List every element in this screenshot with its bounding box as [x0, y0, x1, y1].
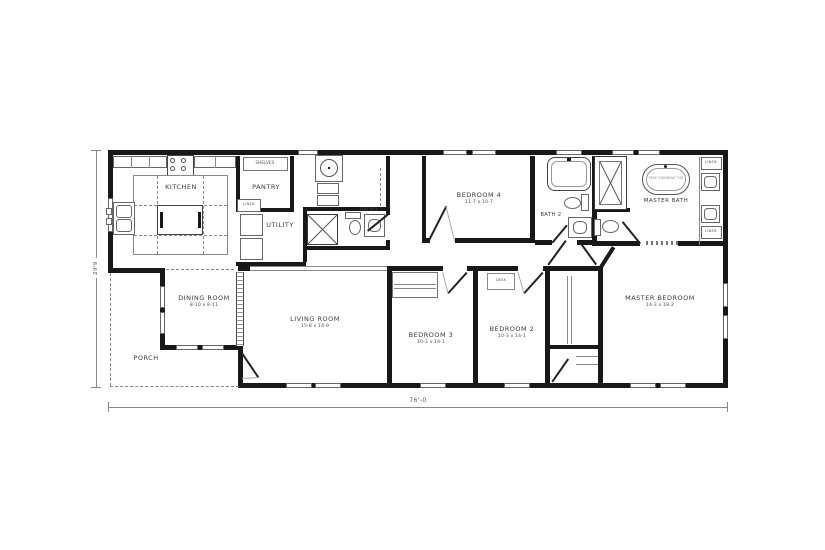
closet-rod: [567, 276, 568, 344]
window: [723, 283, 728, 307]
linen-label: LINEN: [705, 161, 716, 165]
window: [160, 286, 165, 308]
burner-icon: [170, 158, 175, 163]
wall: [108, 268, 165, 273]
wall: [455, 238, 535, 243]
room-label-master-bedroom: MASTER BEDROOM: [625, 295, 695, 302]
closet-rod: [394, 288, 436, 289]
cabinet-line: [149, 156, 150, 168]
wall: [392, 266, 443, 271]
linen-label: LINEN: [705, 230, 716, 234]
room-label-kitchen: KITCHEN: [165, 184, 197, 191]
room-label-pantry: PANTRY: [252, 184, 280, 191]
hall-line: [380, 168, 381, 206]
room-label-utility: UTILITY: [266, 222, 294, 229]
window: [472, 150, 496, 155]
wall: [723, 155, 728, 388]
cabinet-line: [215, 156, 216, 168]
door-swing: [524, 272, 544, 294]
island-line: [203, 176, 204, 254]
vanity-counter-line: [699, 157, 700, 245]
cabinet: [317, 195, 339, 206]
toilet-tank: [581, 194, 589, 211]
plant-shelf-wall: [646, 241, 678, 245]
door-arc: [446, 206, 456, 241]
window: [612, 150, 634, 155]
closet-rod: [571, 276, 572, 344]
toilet-bowl: [564, 197, 581, 209]
room-divider-column: [236, 272, 244, 346]
room-label-porch: PORCH: [133, 355, 158, 362]
burner-icon: [181, 166, 186, 171]
room-dims-bedroom4: 11-7 x 10-7: [465, 201, 493, 206]
room-label-bath3: BATH 3: [360, 209, 377, 214]
bathtub-inner: [551, 161, 587, 187]
washer: [240, 214, 263, 236]
closet-shelf: [576, 364, 598, 365]
kitchen-counter: [113, 156, 167, 168]
dryer: [240, 238, 263, 260]
water-heater-dot: [328, 167, 330, 169]
cased-opening: [166, 269, 234, 270]
wall: [530, 156, 535, 243]
toilet-bowl: [602, 220, 619, 233]
closet: [392, 272, 438, 298]
wall: [290, 156, 294, 212]
window: [420, 383, 446, 388]
room-dims-bedroom2: 10-3 x 14-1: [498, 335, 526, 340]
wall: [550, 345, 598, 349]
burner-icon: [170, 166, 175, 171]
toilet-tank: [345, 212, 361, 219]
room-dims-living: 15-8 x 14-9: [301, 325, 329, 330]
dimension-tick: [727, 402, 728, 412]
island-line: [134, 235, 227, 236]
window: [202, 345, 224, 350]
cabinet: [317, 183, 339, 194]
toilet-bowl: [349, 220, 361, 235]
dimension-line: [108, 407, 728, 408]
door-swing: [241, 352, 259, 378]
louver-line: [250, 270, 387, 271]
wall: [108, 150, 728, 155]
wall: [160, 268, 165, 350]
wall: [422, 156, 426, 243]
wall: [535, 240, 552, 245]
room-label-dining: DINING ROOM: [178, 295, 230, 302]
vanity-sink: [573, 221, 587, 234]
sink-bowl: [116, 219, 132, 232]
door-arc: [242, 377, 259, 379]
toilet-tank: [594, 219, 601, 236]
faucet-icon: [567, 158, 571, 161]
window: [723, 315, 728, 339]
faucet-icon: [106, 208, 112, 215]
door-arc: [517, 272, 524, 293]
wall-diagonal: [598, 246, 615, 270]
wall: [545, 266, 550, 385]
door-swing: [551, 358, 568, 382]
room-dims-bedroom3: 10-3 x 14-1: [417, 341, 445, 346]
window: [638, 150, 660, 155]
wall: [238, 266, 250, 271]
room-label-bedroom4: BEDROOM 4: [457, 192, 502, 199]
window: [315, 383, 341, 388]
door-arc: [442, 272, 448, 294]
room-dims-master-bedroom: 14-3 x 18-2: [646, 304, 674, 309]
window: [556, 150, 582, 155]
room-label-bath2: BATH 2: [540, 213, 561, 218]
window: [630, 383, 656, 388]
room-label-living: LIVING ROOM: [290, 316, 340, 323]
porch-edge: [110, 273, 111, 386]
tub-label: FREE STANDING TUB: [649, 177, 684, 180]
cabinet-line: [131, 156, 132, 168]
wall: [592, 241, 640, 246]
room-label-bedroom3: BEDROOM 3: [409, 332, 454, 339]
shelves-label: SHELVES: [255, 161, 274, 165]
door-swing: [448, 272, 468, 294]
overall-depth-dimension: 29'9: [93, 258, 99, 278]
dimension-tick: [91, 387, 101, 388]
window: [443, 150, 467, 155]
wall: [550, 266, 598, 271]
room-dims-dining: 8-10 x 8-11: [190, 304, 218, 309]
floor-plan-canvas: SHELVES LINEN FREE STANDING TUB LINEN LI…: [0, 0, 825, 550]
window: [286, 383, 312, 388]
wall: [386, 156, 390, 215]
window: [176, 345, 198, 350]
wall: [303, 246, 390, 250]
window: [160, 312, 165, 334]
window: [660, 383, 686, 388]
desk-label: DESK: [496, 279, 506, 283]
louver-line: [250, 266, 387, 267]
porch-edge: [110, 386, 239, 387]
island-seat: [160, 212, 163, 228]
linen-label: LINEN: [243, 203, 254, 207]
wall: [473, 268, 478, 385]
burner-icon: [181, 158, 186, 163]
vanity-sink: [704, 208, 717, 220]
wall: [386, 240, 390, 250]
overall-width-dimension: 76'-0: [406, 398, 429, 404]
shower-x-icon: [308, 215, 337, 244]
room-label-bedroom2: BEDROOM 2: [490, 326, 535, 333]
dimension-tick: [108, 402, 109, 412]
wall: [678, 241, 728, 246]
island-seat: [198, 212, 201, 228]
island-bar: [157, 205, 203, 235]
vanity-sink: [704, 176, 717, 188]
closet-shelf: [576, 356, 598, 357]
closet-rod: [394, 284, 436, 285]
dimension-tick: [91, 150, 101, 151]
wall: [598, 266, 603, 385]
room-label-master-bath: MASTER BATH: [644, 199, 689, 205]
faucet-icon: [106, 218, 112, 225]
shower-x-icon: [600, 162, 621, 204]
window: [504, 383, 530, 388]
door-swing: [427, 206, 446, 242]
faucet-icon: [664, 165, 667, 168]
sink-bowl: [116, 205, 132, 218]
